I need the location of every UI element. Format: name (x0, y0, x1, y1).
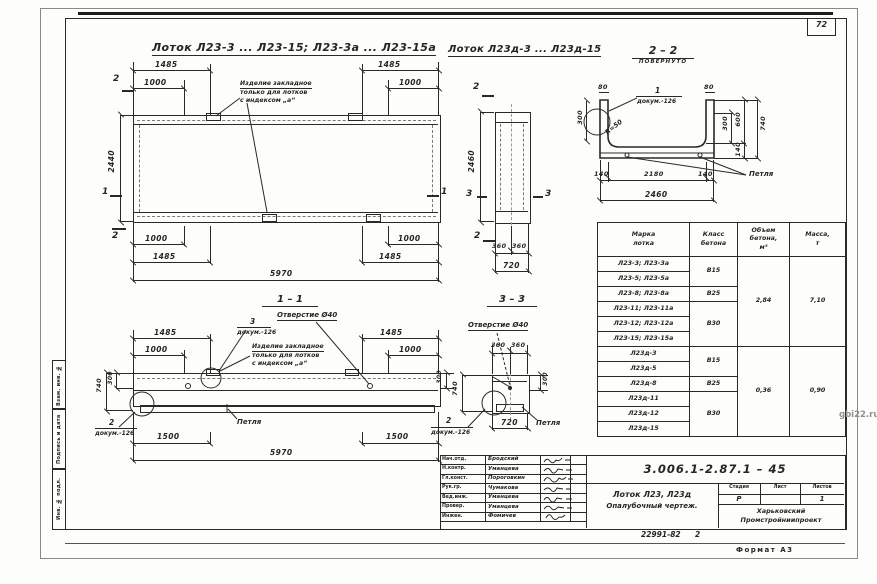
drawing-title-line1: Лоток Л23, Л23д (586, 490, 718, 499)
marker-line (482, 95, 494, 97)
section11-title: 1 – 1 (262, 294, 318, 307)
table-cell-class: В15 (690, 257, 738, 287)
table-cell-mark: Л23д-15 (598, 422, 690, 437)
callout-line (431, 427, 473, 428)
dim-label: 2460 (645, 190, 667, 199)
callout-line (95, 428, 137, 429)
dim-label: 720 (501, 418, 518, 427)
dim-label: 300 (721, 116, 729, 131)
line (496, 122, 528, 123)
line (134, 124, 438, 125)
table-cell-class: В15 (690, 347, 738, 377)
dim-label: 360 (511, 342, 525, 349)
sheet-top-edge (78, 12, 833, 15)
ext-line (210, 226, 211, 264)
hole-label: Отверстие Ø40 (468, 321, 528, 331)
dim-line (462, 375, 463, 412)
table-cell-class: В25 (690, 377, 738, 392)
dim-label: 2180 (644, 170, 664, 178)
dim-label: 5970 (270, 448, 292, 457)
hole-label: Отверстие Ø40 (277, 311, 337, 321)
dim-line (757, 100, 758, 158)
section-marker-2: 2 (112, 231, 118, 241)
table-cell-mass: 0,90 (790, 347, 846, 437)
dim-line (362, 70, 439, 71)
person-name: Уманцева (488, 466, 519, 472)
dim-line (731, 113, 732, 143)
dim-label: 1485 (380, 328, 402, 337)
ext-line (121, 221, 133, 222)
marker-line (477, 196, 487, 198)
dim-label: 600 (734, 112, 742, 127)
person-role: Инжен. (442, 514, 463, 519)
drawing-sheet: 72 Взам. инв. № Подпись и дата Инв. № по… (0, 0, 877, 584)
dim-label: 1485 (155, 60, 177, 69)
section-marker-3: 3 (545, 189, 551, 199)
table-cell-mark: Л23-8; Л23-8а (598, 287, 690, 302)
grid-line (718, 504, 844, 505)
dim-line (362, 262, 439, 263)
table-cell-mark: Л23-3; Л23-3а (598, 257, 690, 272)
callout-number: 3 (250, 317, 255, 326)
section-marker-1: 1 (441, 187, 447, 197)
dim-label: 80 (598, 83, 608, 91)
margin-field-podpis: Подпись и дата (52, 408, 66, 470)
doc-ref: докум.-126 (95, 430, 134, 437)
sheets-label: Листов (800, 485, 844, 490)
dashed-line (500, 124, 501, 210)
view1-title: Лоток Л23-3 ... Л23-15; Л23-3а ... Л23-1… (152, 41, 436, 56)
ext-line (463, 411, 492, 412)
sheet-number-box: 72 (807, 18, 836, 36)
dim-line (362, 338, 439, 339)
line (496, 211, 528, 212)
dim-line (133, 443, 210, 444)
dim-line (388, 355, 439, 356)
ext-line (438, 412, 439, 462)
ext-line (438, 222, 439, 282)
section22-title: 2 – 2 (632, 44, 694, 59)
person-name: Пороговкин (488, 475, 525, 481)
embed-plate (345, 369, 359, 376)
dim-label: 2460 (467, 150, 476, 172)
watermark: gbi22.ru (839, 410, 877, 420)
dim-label: 360 (492, 243, 506, 250)
section-marker-3: 3 (466, 189, 472, 199)
table-cell-class: В25 (690, 287, 738, 302)
section-marker-2: 2 (474, 231, 480, 241)
ext-line (714, 158, 758, 159)
line (134, 212, 438, 213)
dim-label: 740 (95, 378, 103, 393)
dim-label: 1500 (157, 432, 179, 441)
callout-line (237, 327, 271, 328)
format-note: Формат А3 (736, 546, 794, 554)
dim-line (599, 92, 609, 93)
dim-line (495, 271, 529, 272)
dashed-line (137, 378, 436, 379)
embed-plate (206, 113, 221, 121)
person-name: Уманцева (488, 494, 519, 500)
drawing-title-line2: Опалубочный чертеж. (586, 502, 718, 510)
embed-plate (348, 113, 363, 121)
ext-line (362, 226, 363, 264)
embed-note-line2: только для лотков (240, 89, 312, 96)
table-header-volume: Объем бетона, м³ (738, 223, 790, 257)
sheet-number: 72 (808, 20, 835, 29)
table-cell-volume: 0,36 (738, 347, 790, 437)
ext-line (184, 80, 185, 115)
dim-label: 80 (704, 83, 714, 91)
org-line1: Харьковский (718, 507, 844, 515)
table-header-mark: Марка лотка (598, 223, 690, 257)
dim-line (133, 70, 210, 71)
embed-note-line3: с индексом „а“ (240, 97, 312, 104)
org-line2: Промстройниипроект (718, 516, 844, 524)
ext-line (463, 375, 492, 376)
stage-value: Р (718, 495, 760, 503)
dim-label: 1000 (399, 345, 421, 354)
dim-label: 1000 (398, 234, 420, 243)
dim-label: 140 (594, 170, 609, 178)
dim-label: 360 (491, 342, 505, 349)
person-name: Бродский (488, 456, 518, 462)
person-role: Гл.конст. (442, 476, 468, 481)
table-header-class: Класс бетона (690, 223, 738, 257)
table-cell-mark: Л23-5; Л23-5а (598, 272, 690, 287)
table-cell-mark: Л23д-11 (598, 392, 690, 407)
callout-number: 1 (655, 86, 660, 95)
grid-line (586, 483, 844, 484)
person-name: Уманцева (488, 504, 519, 510)
table-cell-mark: Л23-15; Л23-15а (598, 332, 690, 347)
table-header-mass: Масса, т (790, 223, 846, 257)
person-name: Фомичев (488, 513, 516, 519)
margin-field-vzam: Взам. инв. № (52, 360, 66, 410)
dim-label: 1500 (386, 432, 408, 441)
plan1-body (133, 115, 441, 223)
section-marker-2: 2 (113, 74, 119, 84)
dim-label: 1000 (399, 78, 421, 87)
embed-note-line1: Изделие закладное (240, 80, 312, 89)
dim-line (133, 280, 439, 281)
person-role: Рук.гр. (442, 485, 461, 490)
dim-line (540, 375, 541, 390)
dashed-line (137, 216, 436, 217)
dim-label: 1000 (145, 234, 167, 243)
ext-line (388, 350, 389, 373)
dim-label: 740 (759, 116, 767, 131)
dim-label: 740 (451, 381, 459, 396)
table-cell-mark: Л23д-8 (598, 377, 690, 392)
marker-line (122, 90, 134, 92)
view2-title: Лоток Л23д-3 ... Л23д-15 (448, 44, 601, 57)
person-role: Вед.инж. (442, 495, 468, 500)
embed-plate (206, 369, 220, 376)
ext-line (481, 221, 494, 222)
doc-number: 3.006.1-2.87.1 – 45 (586, 458, 844, 480)
dim-line (480, 112, 481, 222)
dim-label: 1485 (379, 252, 401, 261)
dim-line (586, 101, 587, 141)
dim-line (600, 200, 714, 201)
dim-line (600, 180, 714, 181)
line (134, 390, 438, 391)
embed-note-line1: Изделие закладное (252, 343, 324, 352)
margin-field-inv: Инв. № подл. (52, 468, 66, 530)
dim-label: 5970 (270, 269, 292, 278)
dim-line (492, 428, 528, 429)
embed-note-line2: только для лотков (252, 352, 324, 359)
ext-line (714, 100, 758, 101)
ext-line (388, 80, 389, 115)
dashed-line (137, 120, 436, 121)
marker-line (483, 240, 495, 242)
dim-label: 300 (576, 110, 584, 125)
ext-line (492, 345, 493, 374)
ext-line (133, 222, 134, 282)
center-line (511, 104, 512, 230)
dim-line (133, 355, 184, 356)
ext-line (133, 412, 134, 462)
dim-line (133, 338, 210, 339)
table-cell-mark: Л23д-5 (598, 362, 690, 377)
sheet-label: Лист (760, 485, 800, 490)
dim-line (492, 353, 528, 354)
dim-line (388, 244, 439, 245)
dim-label: 300 (107, 371, 114, 385)
dim-line (133, 88, 184, 89)
table-cell-mark: Л23-12; Л23-12а (598, 317, 690, 332)
loop-label: Петля (536, 419, 560, 427)
dim-label: 140 (698, 170, 713, 178)
dim-line (705, 92, 715, 93)
person-role: Н.контр. (442, 466, 466, 471)
doc-ref: докум.-126 (431, 429, 470, 436)
dim-line (116, 373, 117, 388)
section-marker-1: 1 (102, 187, 108, 197)
embed-note: Изделие закладное только для лотков с ин… (240, 80, 312, 104)
embed-plate (262, 214, 277, 222)
dim-label: 1485 (154, 328, 176, 337)
sheets-value: 1 (800, 495, 844, 503)
marker-line (533, 196, 543, 198)
table-cell-mass: 7,10 (790, 257, 846, 347)
table-cell-class: В30 (690, 392, 738, 437)
table-cell-mark: Л23д-12 (598, 407, 690, 422)
table-cell-mark: Л23д-3 (598, 347, 690, 362)
stage-label: Стадия (718, 485, 760, 490)
marker-line (112, 228, 126, 230)
dim-label: 360 (512, 243, 526, 250)
marker-line (427, 195, 439, 197)
doc-ref: докум.-126 (637, 98, 676, 105)
table-cell-volume: 2,84 (738, 257, 790, 347)
dim-line (362, 443, 439, 444)
ext-line (184, 350, 185, 373)
dim-line (133, 460, 439, 461)
dim-line (133, 262, 210, 263)
person-name: Чумакова (488, 485, 518, 491)
order-number: 22991-82 (641, 530, 681, 539)
doc-ref: докум.-126 (237, 329, 276, 336)
loop-label: Петля (749, 170, 773, 178)
dashed-line (139, 125, 140, 212)
spec-table: Марка лотка Класс бетона Объем бетона, м… (597, 222, 846, 437)
person-role: Провер. (442, 504, 464, 509)
section11-bottom-strip (140, 405, 435, 413)
dim-label: 720 (503, 261, 520, 270)
ext-line (529, 390, 548, 391)
dashed-line (432, 125, 433, 212)
marker-line (110, 195, 122, 197)
dim-line (120, 115, 121, 222)
section22-subtitle: повернуто (632, 59, 694, 65)
person-role: Нач.отд. (442, 457, 466, 462)
loop-label: Петля (237, 418, 261, 426)
embed-plate (366, 214, 381, 222)
table-cell-class: В30 (690, 302, 738, 347)
callout-number: 2 (446, 416, 451, 425)
dim-line (446, 373, 447, 388)
dim-line (744, 100, 745, 158)
section33-title: 3 – 3 (487, 294, 537, 307)
dashed-line (523, 124, 524, 210)
ext-line (527, 345, 528, 374)
dim-label: 1000 (144, 78, 166, 87)
center-line (510, 368, 511, 420)
bottom-margin-line (65, 543, 845, 544)
callout-number: 2 (109, 418, 114, 427)
dim-label: 140 (734, 142, 742, 157)
dim-label: 1000 (145, 345, 167, 354)
section-marker-2: 2 (473, 82, 479, 92)
order-extra: 2 (695, 530, 700, 539)
embed-note-line3: с индексом „а“ (252, 360, 324, 367)
ext-line (528, 224, 529, 273)
dim-label: 300 (436, 370, 443, 384)
dim-label: 1485 (378, 60, 400, 69)
dim-label: 300 (542, 372, 549, 386)
grid-line (440, 521, 586, 522)
table-cell-mark: Л23-11; Л23-11а (598, 302, 690, 317)
dim-line (133, 244, 184, 245)
callout-line (636, 96, 682, 97)
ext-line (106, 410, 133, 411)
ext-line (133, 330, 134, 373)
dim-line (388, 88, 439, 89)
dim-label: 1485 (153, 252, 175, 261)
dim-label: 2440 (107, 150, 116, 172)
